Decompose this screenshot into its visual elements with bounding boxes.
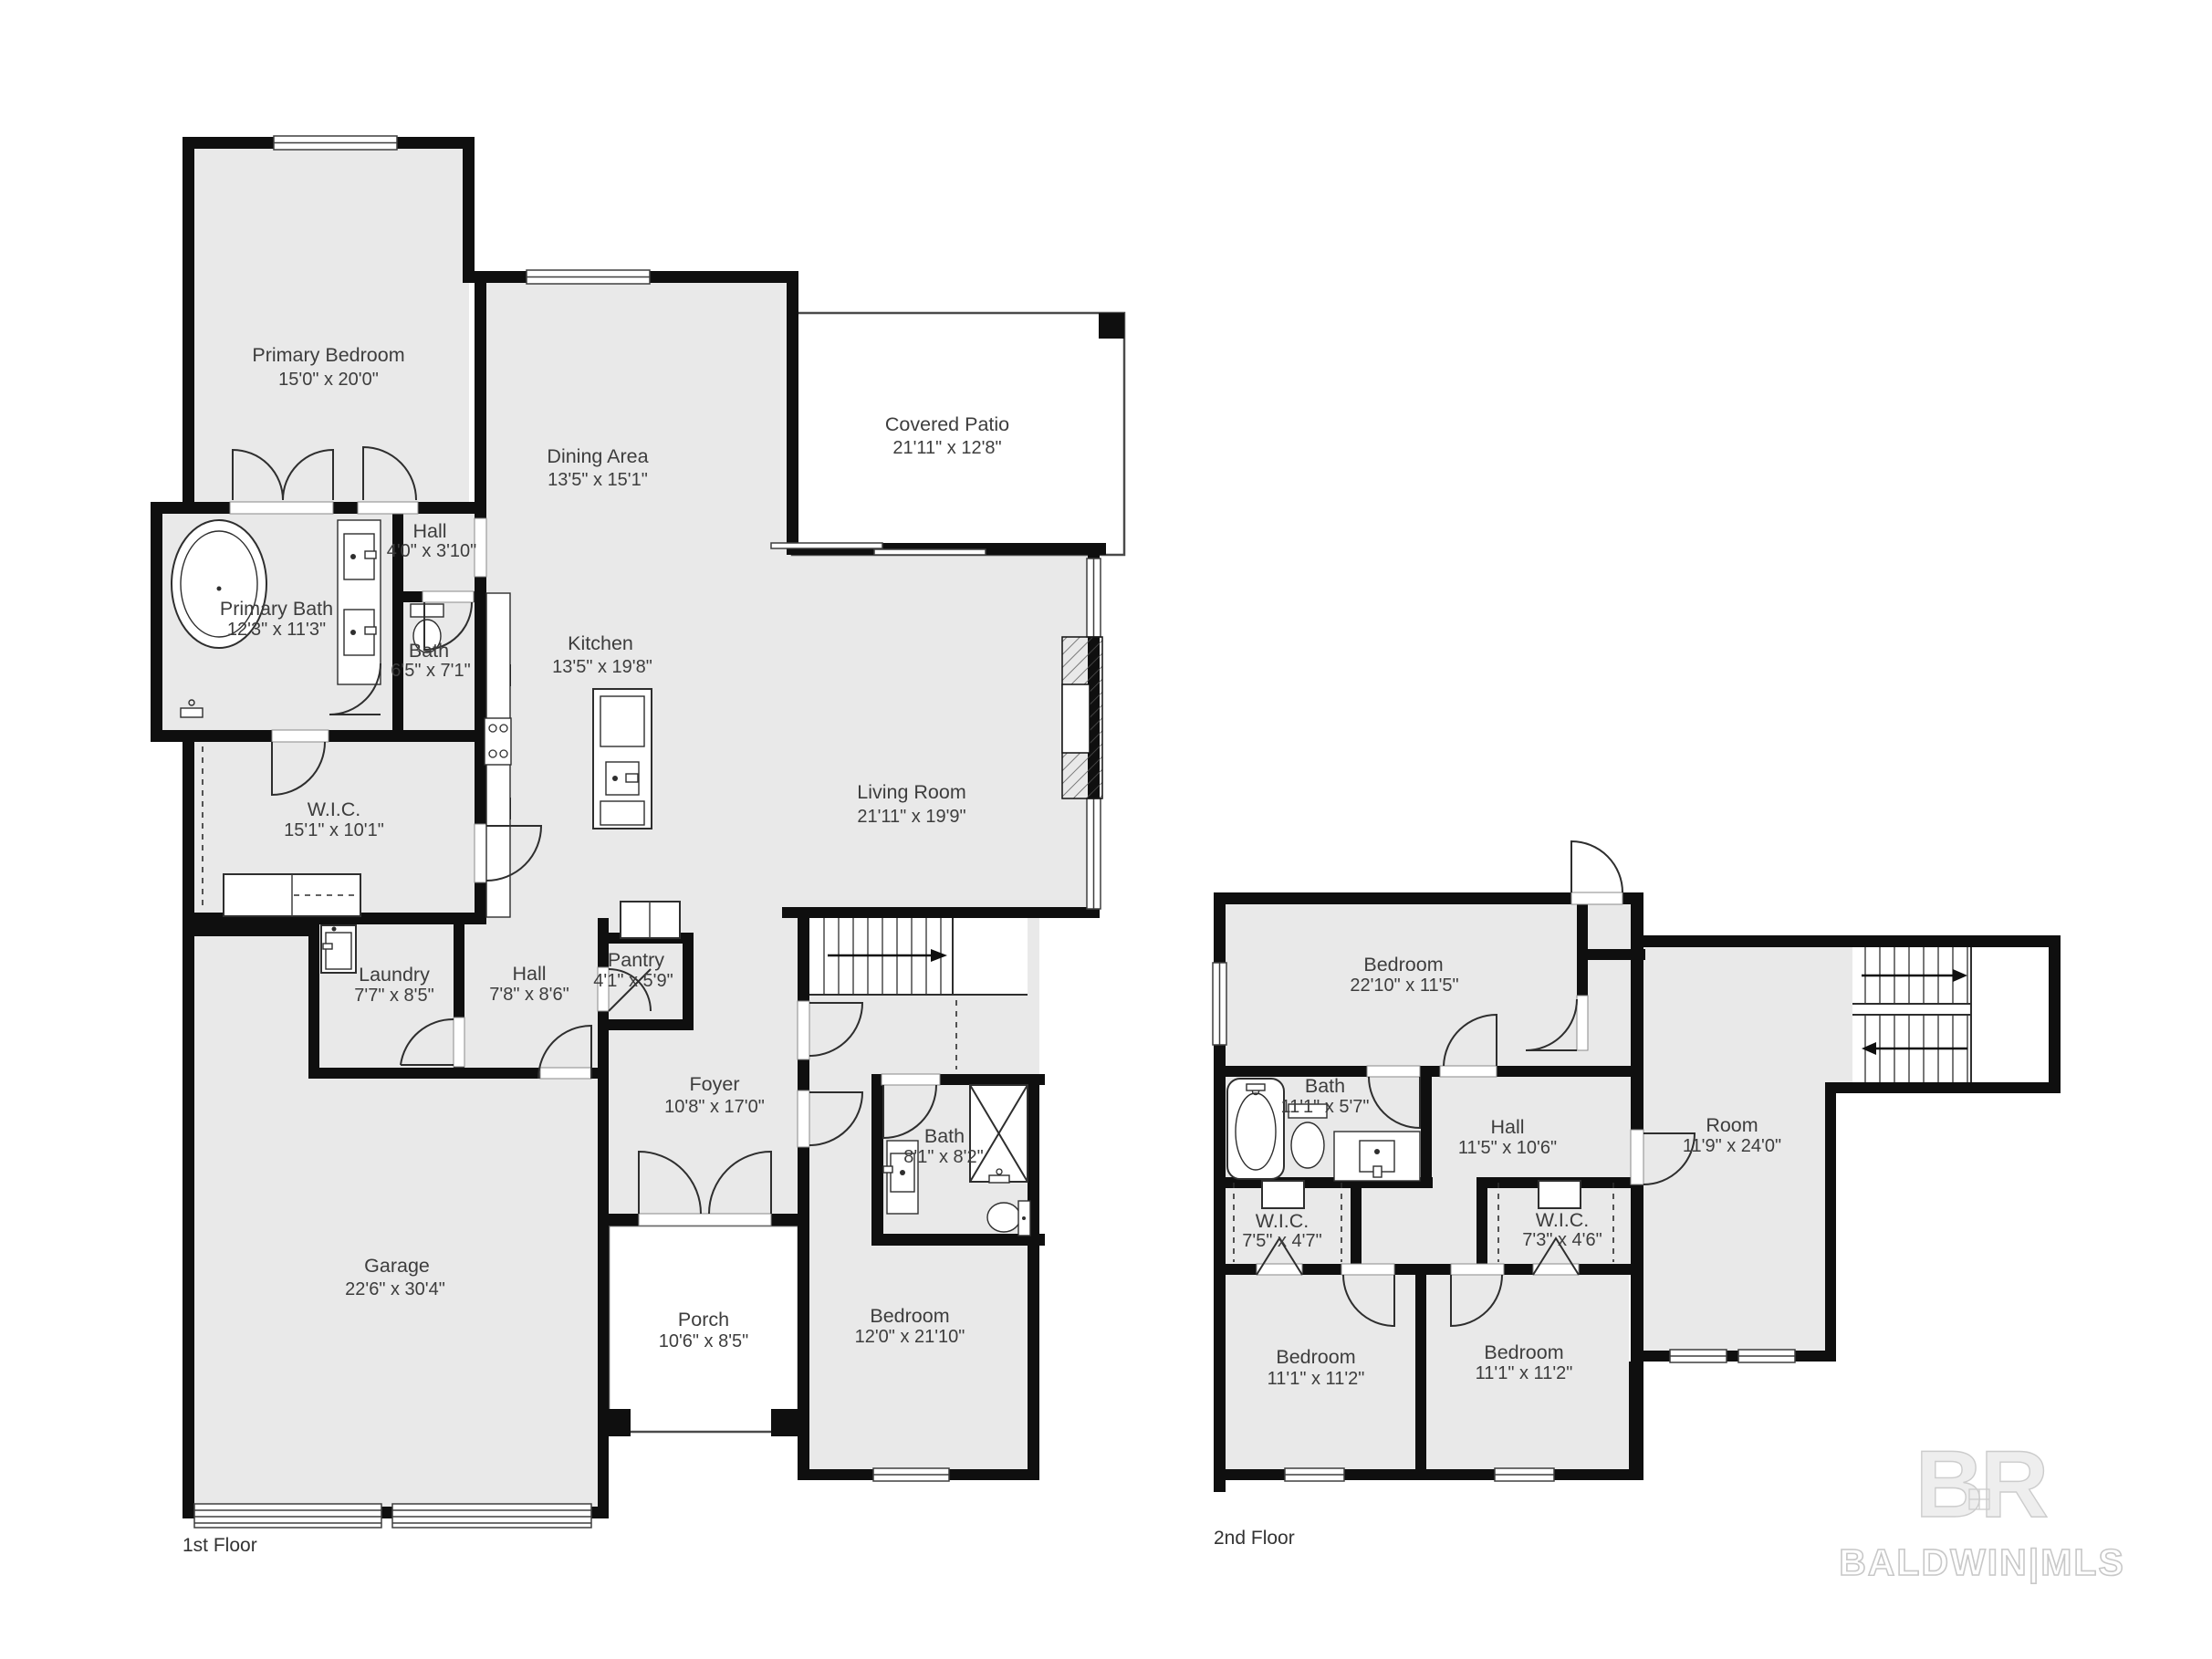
label-bath-name: Bath [924,1125,965,1147]
floor2-stairs [1852,947,2049,1082]
baldwin-mls-watermark: BR BALDWIN|MLS [1839,1432,2125,1583]
label-wic-left-dims: 7'5" x 4'7" [1242,1231,1321,1251]
label-primary-bath-dims: 12'3" x 11'3" [227,620,326,640]
label-wic-dims: 15'1" x 10'1" [284,820,384,840]
kitchen-island [593,689,652,829]
first-floor-plan: Primary Bedroom 15'0" x 20'0" Dining Are… [151,136,1124,1556]
double-vanity-icon [338,520,381,684]
label-laundry-dims: 7'7" x 8'5" [354,986,433,1006]
window [1087,798,1101,909]
label-dining-name: Dining Area [547,445,648,467]
label-hall-name: Hall [512,963,546,985]
label-wic-left-name: W.I.C. [1256,1210,1309,1232]
label-porch-dims: 10'6" x 8'5" [659,1331,749,1351]
label-kitchen-dims: 13'5" x 19'8" [552,657,652,677]
window [1670,1350,1727,1362]
bathtub-icon [1227,1079,1284,1179]
label-hall2-name: Hall [1490,1116,1524,1138]
label-garage-name: Garage [364,1255,430,1277]
label-wic-name: W.I.C. [308,798,361,820]
label-bedroom-right-name: Bedroom [1484,1341,1563,1363]
floorplan-canvas: Primary Bedroom 15'0" x 20'0" Dining Are… [0,0,2212,1659]
label-living-dims: 21'11" x 19'9" [857,807,965,827]
label-primary-bath-name: Primary Bath [220,598,333,620]
label-bedroom-left-dims: 11'1" x 11'2" [1268,1369,1365,1389]
label-pantry-name: Pantry [608,949,664,971]
porch-post-right [771,1409,798,1436]
wic-shelf [1539,1181,1581,1208]
label-primary-bedroom-name: Primary Bedroom [252,344,404,366]
label-bath-small-name: Bath [409,640,449,662]
label-hall-small-dims: 4'0" x 3'10" [387,541,477,561]
label-foyer-name: Foyer [690,1073,740,1095]
stove-icon [485,718,511,765]
window [873,1468,949,1481]
label-patio-name: Covered Patio [885,413,1009,435]
label-kitchen-name: Kitchen [568,632,633,654]
window [1495,1468,1554,1481]
label-hall-dims: 7'8" x 8'6" [489,985,569,1005]
label-bedroom-left-name: Bedroom [1276,1346,1355,1368]
label-dining-dims: 13'5" x 15'1" [548,470,648,490]
floorplan-page: Primary Bedroom 15'0" x 20'0" Dining Are… [0,0,2212,1659]
fireplace-icon [1062,637,1102,798]
label-patio-dims: 21'11" x 12'8" [892,438,1001,458]
window [1087,558,1101,637]
label-primary-bedroom-dims: 15'0" x 20'0" [278,370,379,390]
label-bath-dims: 8'1" x 8'2" [903,1147,983,1167]
patio-post [1099,313,1124,339]
garage-door [194,1504,381,1528]
wic-shelf [1262,1181,1304,1208]
label-bath2-dims: 11'1" x 5'7" [1280,1097,1369,1117]
label-wic-right-dims: 7'3" x 4'6" [1522,1230,1602,1250]
label-room-dims: 11'9" x 24'0" [1683,1136,1781,1156]
label-bedroom-right-dims: 11'1" x 11'2" [1476,1363,1573,1383]
label-pantry-dims: 4'1" x 5'9" [593,971,673,991]
watermark-brand-text: BALDWIN|MLS [1839,1541,2125,1583]
garage-door [392,1504,591,1528]
label-wic-right-name: W.I.C. [1536,1209,1590,1231]
watermark-logo-initials: BR [1915,1432,2047,1538]
window [1285,1468,1344,1481]
window [1213,963,1226,1045]
label-porch-name: Porch [678,1309,729,1330]
washer-icon [321,925,356,973]
window [1738,1350,1795,1362]
second-floor-caption: 2nd Floor [1214,1528,1295,1549]
wic-bench [224,874,360,916]
label-bedroom-name: Bedroom [870,1305,949,1327]
first-floor-caption: 1st Floor [183,1535,257,1556]
label-bedroom-dims: 12'0" x 21'10" [855,1327,965,1347]
label-living-name: Living Room [857,781,966,803]
label-laundry-name: Laundry [359,964,430,986]
label-hall2-dims: 11'5" x 10'6" [1458,1138,1557,1158]
window [274,136,397,150]
label-room-name: Room [1706,1114,1758,1136]
label-bedroom-top-name: Bedroom [1363,954,1443,976]
shower-icon [970,1085,1028,1183]
vanity-icon [1334,1132,1420,1181]
label-hall-small-name: Hall [412,520,446,542]
refrigerator-icon [621,902,680,938]
label-bath2-name: Bath [1305,1075,1345,1097]
window [527,270,650,284]
label-foyer-dims: 10'8" x 17'0" [664,1097,765,1117]
label-garage-dims: 22'6" x 30'4" [345,1279,445,1299]
label-bedroom-top-dims: 22'10" x 11'5" [1350,976,1458,996]
kitchen-counter [485,593,511,917]
label-bath-small-dims: 6'5" x 7'1" [391,661,470,681]
